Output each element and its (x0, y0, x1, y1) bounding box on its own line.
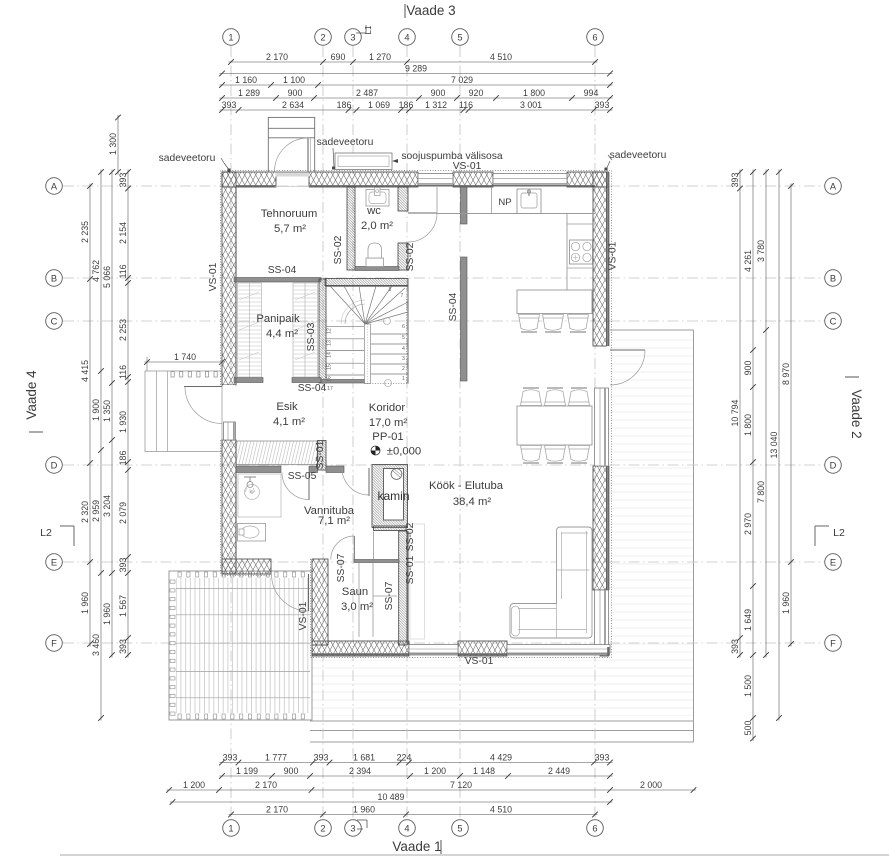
svg-text:4 762: 4 762 (91, 260, 101, 282)
svg-text:7 800: 7 800 (756, 481, 766, 503)
svg-text:690: 690 (331, 52, 346, 62)
svg-text:B: B (830, 273, 836, 283)
svg-text:1: 1 (228, 32, 233, 42)
svg-text:4 510: 4 510 (490, 52, 512, 62)
svg-text:500: 500 (743, 721, 753, 736)
svg-text:E: E (51, 557, 57, 567)
svg-text:1 960: 1 960 (80, 592, 90, 614)
svg-text:SS-07: SS-07 (336, 553, 347, 582)
svg-text:kamin: kamin (377, 489, 409, 503)
svg-text:2: 2 (320, 823, 325, 833)
svg-text:2 235: 2 235 (80, 221, 90, 243)
svg-text:1 900: 1 900 (91, 399, 101, 421)
svg-text:1 300: 1 300 (108, 133, 118, 155)
svg-text:13 040: 13 040 (769, 431, 779, 458)
svg-text:SS-07: SS-07 (384, 581, 395, 610)
svg-text:5 066: 5 066 (102, 266, 112, 288)
svg-text:2 170: 2 170 (255, 780, 277, 790)
svg-text:17: 17 (327, 386, 333, 392)
svg-text:1 199: 1 199 (236, 766, 258, 776)
svg-text:7,1 m²: 7,1 m² (318, 515, 350, 527)
svg-text:1 740: 1 740 (174, 352, 196, 362)
svg-text:6: 6 (592, 32, 597, 42)
svg-text:2 959: 2 959 (91, 500, 101, 522)
svg-text:393: 393 (314, 752, 329, 762)
svg-text:NP: NP (498, 197, 511, 208)
svg-text:3,0 m²: 3,0 m² (341, 601, 373, 613)
svg-text:Tehnoruum: Tehnoruum (261, 208, 318, 220)
svg-text:VS-01: VS-01 (208, 262, 219, 291)
svg-text:1 100: 1 100 (283, 75, 305, 85)
svg-text:Vaade 2: Vaade 2 (849, 389, 864, 438)
svg-text:4 510: 4 510 (490, 804, 512, 814)
svg-text:2: 2 (320, 32, 325, 42)
svg-text:3 780: 3 780 (756, 240, 766, 262)
svg-text:SS-01: SS-01 (315, 440, 326, 469)
svg-text:1 069: 1 069 (368, 100, 390, 110)
svg-text:2 487: 2 487 (356, 88, 378, 98)
svg-text:116: 116 (118, 365, 128, 379)
svg-text:1 200: 1 200 (424, 766, 446, 776)
svg-text:sadeveetoru: sadeveetoru (610, 150, 667, 161)
svg-text:2: 2 (402, 366, 405, 372)
svg-text:994: 994 (584, 88, 599, 98)
svg-text:16: 16 (327, 376, 333, 382)
svg-text:116: 116 (459, 100, 473, 110)
svg-text:Esik: Esik (276, 401, 298, 413)
svg-text:6: 6 (592, 823, 597, 833)
svg-text:VS-01: VS-01 (465, 656, 494, 667)
svg-text:4 261: 4 261 (743, 250, 753, 272)
svg-text:393: 393 (118, 558, 128, 573)
svg-text:2,0 m²: 2,0 m² (361, 220, 393, 232)
svg-text:7: 7 (401, 293, 404, 299)
svg-text:2 170: 2 170 (266, 804, 288, 814)
svg-text:186: 186 (337, 100, 352, 110)
svg-text:1 350: 1 350 (102, 400, 112, 422)
svg-text:4: 4 (402, 346, 405, 352)
svg-text:14: 14 (327, 352, 333, 358)
svg-text:2 394: 2 394 (349, 766, 371, 776)
svg-text:4 429: 4 429 (490, 752, 512, 762)
svg-text:Vaade 1: Vaade 1 (392, 839, 441, 854)
svg-text:L2: L2 (833, 527, 845, 539)
svg-text:1 960: 1 960 (102, 603, 112, 625)
svg-text:8: 8 (389, 287, 392, 293)
svg-text:Vaade 4: Vaade 4 (24, 370, 39, 420)
svg-text:900: 900 (288, 88, 303, 98)
svg-text:VS-01: VS-01 (298, 601, 309, 630)
svg-text:SS-04: SS-04 (448, 292, 459, 321)
svg-text:17,0 m²: 17,0 m² (369, 417, 408, 429)
svg-text:1 930: 1 930 (118, 411, 128, 433)
svg-text:900: 900 (431, 88, 446, 98)
svg-text:SS-04: SS-04 (268, 265, 297, 276)
svg-text:2 449: 2 449 (548, 766, 570, 776)
svg-text:8 970: 8 970 (781, 363, 791, 385)
svg-text:393: 393 (118, 173, 128, 188)
svg-text:2 079: 2 079 (118, 502, 128, 524)
svg-text:2 320: 2 320 (80, 501, 90, 523)
svg-text:SS-02: SS-02 (405, 242, 416, 271)
svg-text:2 970: 2 970 (743, 513, 753, 535)
svg-text:7 029: 7 029 (451, 75, 473, 85)
svg-text:SS-05: SS-05 (288, 471, 317, 482)
svg-text:A: A (830, 181, 837, 191)
svg-text:393: 393 (223, 752, 238, 762)
svg-text:920: 920 (469, 88, 484, 98)
svg-text:1: 1 (402, 376, 405, 382)
svg-text:1 777: 1 777 (265, 752, 287, 762)
svg-text:13: 13 (327, 340, 333, 346)
svg-text:Saun: Saun (342, 586, 368, 598)
svg-text:900: 900 (284, 766, 299, 776)
svg-text:1 960: 1 960 (781, 592, 791, 614)
svg-text:Panipaik: Panipaik (256, 313, 300, 325)
svg-text:wc: wc (366, 205, 381, 217)
svg-text:±0,000: ±0,000 (387, 446, 421, 458)
svg-text:sadeveetoru: sadeveetoru (317, 137, 374, 148)
svg-text:2 170: 2 170 (266, 52, 288, 62)
svg-text:L1: L1 (364, 25, 373, 34)
svg-text:1 960: 1 960 (353, 804, 375, 814)
svg-text:1 800: 1 800 (523, 88, 545, 98)
svg-text:393: 393 (595, 100, 610, 110)
svg-text:10 794: 10 794 (730, 399, 740, 426)
svg-text:4,4 m²: 4,4 m² (266, 328, 298, 340)
svg-text:10 489: 10 489 (378, 792, 405, 802)
svg-text:5,7 m²: 5,7 m² (274, 223, 306, 235)
svg-text:15: 15 (327, 364, 333, 370)
svg-text:D: D (51, 460, 58, 470)
svg-text:4,1 m²: 4,1 m² (273, 416, 305, 428)
svg-text:1 681: 1 681 (353, 752, 375, 762)
svg-text:393: 393 (595, 752, 610, 762)
svg-text:2 634: 2 634 (282, 100, 304, 110)
svg-text:4: 4 (404, 32, 409, 42)
svg-text:Köök - Elutuba: Köök - Elutuba (429, 480, 504, 492)
svg-text:9 289: 9 289 (405, 63, 427, 73)
svg-text:Koridor: Koridor (369, 402, 406, 414)
svg-text:5: 5 (457, 823, 462, 833)
svg-text:B: B (51, 273, 57, 283)
svg-text:F: F (51, 638, 57, 648)
svg-text:900: 900 (743, 361, 753, 376)
svg-text:224: 224 (397, 752, 412, 762)
svg-text:186: 186 (399, 100, 414, 110)
svg-text:SS-02: SS-02 (405, 522, 416, 551)
svg-text:4: 4 (404, 823, 409, 833)
svg-text:soojuspumba välisosa: soojuspumba välisosa (401, 151, 503, 162)
svg-text:4 415: 4 415 (80, 360, 90, 382)
svg-text:A: A (51, 181, 58, 191)
svg-text:1 270: 1 270 (369, 52, 391, 62)
svg-text:12: 12 (327, 328, 333, 334)
svg-text:3: 3 (402, 356, 405, 362)
svg-text:1 160: 1 160 (235, 75, 257, 85)
svg-text:1 200: 1 200 (183, 780, 205, 790)
svg-text:SS-01: SS-01 (405, 555, 416, 584)
svg-text:3 204: 3 204 (102, 495, 112, 517)
svg-text:186: 186 (118, 451, 128, 466)
svg-text:E: E (830, 557, 836, 567)
svg-text:3 001: 3 001 (520, 100, 542, 110)
svg-text:C: C (830, 316, 837, 326)
svg-text:3: 3 (350, 823, 355, 833)
svg-text:Vaade 3: Vaade 3 (406, 3, 455, 18)
svg-text:2 253: 2 253 (118, 319, 128, 341)
svg-text:1 500: 1 500 (743, 675, 753, 697)
svg-text:393: 393 (730, 639, 740, 654)
svg-text:C: C (51, 316, 58, 326)
svg-text:PP-01: PP-01 (372, 431, 403, 443)
svg-text:1 148: 1 148 (473, 766, 495, 776)
svg-text:2 000: 2 000 (640, 780, 662, 790)
svg-text:VS-01: VS-01 (453, 161, 482, 172)
svg-text:D: D (830, 460, 837, 470)
svg-text:38,4 m²: 38,4 m² (453, 496, 492, 508)
svg-text:SS-03: SS-03 (306, 322, 317, 351)
svg-text:393: 393 (730, 173, 740, 188)
svg-text:SS-02: SS-02 (333, 235, 344, 264)
svg-text:1 800: 1 800 (743, 414, 753, 436)
svg-text:1 312: 1 312 (425, 100, 447, 110)
svg-text:1: 1 (228, 823, 233, 833)
svg-text:sadeveetoru: sadeveetoru (159, 153, 216, 164)
svg-text:SS-04: SS-04 (298, 383, 327, 394)
svg-text:F: F (830, 638, 836, 648)
svg-text:6: 6 (402, 324, 405, 330)
svg-text:1 289: 1 289 (238, 88, 260, 98)
svg-text:5: 5 (402, 335, 405, 341)
svg-text:L2: L2 (40, 527, 52, 539)
svg-text:393: 393 (222, 100, 237, 110)
svg-text:2 154: 2 154 (118, 222, 128, 244)
svg-text:7 120: 7 120 (450, 780, 472, 790)
svg-text:393: 393 (118, 639, 128, 654)
svg-text:3 460: 3 460 (91, 634, 101, 656)
svg-text:3: 3 (350, 32, 355, 42)
svg-text:VS-01: VS-01 (608, 241, 619, 270)
svg-text:1 567: 1 567 (118, 595, 128, 617)
svg-text:5: 5 (457, 32, 462, 42)
svg-text:1 649: 1 649 (743, 609, 753, 631)
svg-text:116: 116 (118, 264, 128, 278)
